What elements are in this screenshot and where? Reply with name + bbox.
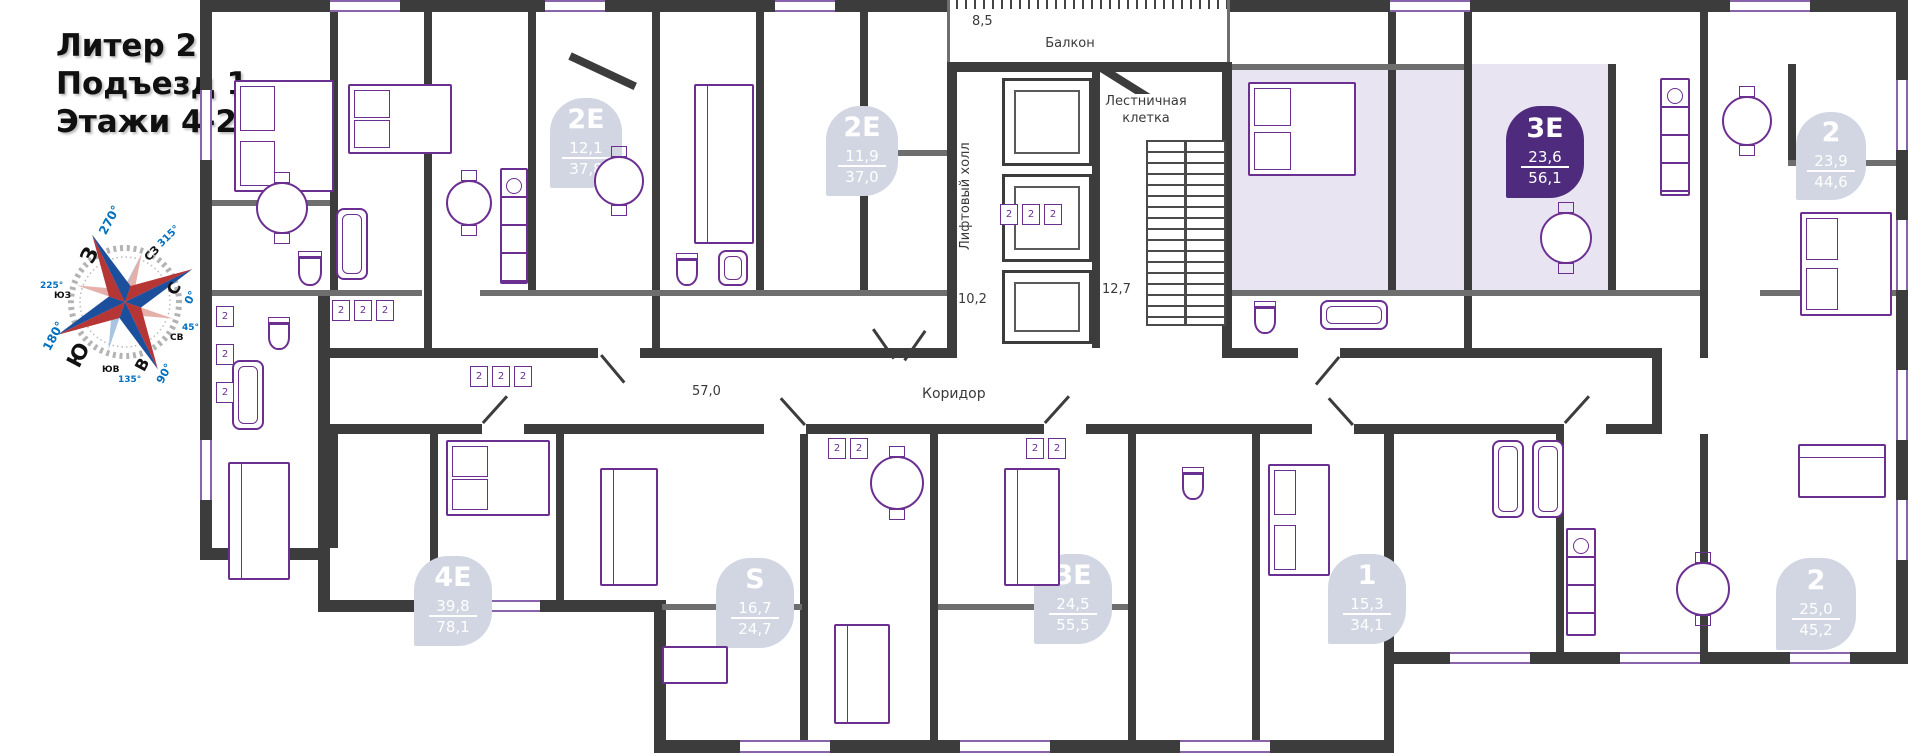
apartment-total-area: 44,6 bbox=[1814, 172, 1847, 192]
apartment-type: 2Е bbox=[843, 114, 880, 142]
window bbox=[1896, 220, 1908, 290]
wall bbox=[212, 290, 422, 296]
furniture-sofa bbox=[1798, 444, 1886, 498]
wall bbox=[800, 434, 808, 740]
window bbox=[1896, 500, 1908, 560]
furniture-sofa bbox=[834, 624, 890, 724]
window-mark: 2 bbox=[1000, 204, 1018, 225]
apartment-badge-2e-2[interactable]: 2Е 11,9 37,0 bbox=[826, 106, 898, 196]
wall bbox=[1252, 434, 1260, 740]
window bbox=[775, 0, 835, 12]
furniture-sofa bbox=[228, 462, 290, 580]
window-mark: 2 bbox=[1026, 438, 1044, 459]
plan-title-floors: Этажи 4-24 bbox=[56, 104, 259, 140]
wall bbox=[556, 434, 564, 600]
floor-plan: Литер 2 Подъезд 1 Этажи 4-24 270° З 315°… bbox=[0, 0, 1920, 753]
door-swing bbox=[1564, 395, 1590, 424]
window-mark: 2 bbox=[1048, 438, 1066, 459]
wall bbox=[330, 434, 338, 548]
wall bbox=[1388, 12, 1396, 290]
furniture-desk bbox=[662, 646, 728, 684]
compass-deg-45: 45° bbox=[182, 323, 199, 333]
window bbox=[1180, 740, 1270, 753]
apartment-living-area: 25,0 bbox=[1792, 600, 1839, 621]
furniture-bathtub bbox=[1532, 440, 1564, 518]
wall bbox=[1608, 64, 1616, 290]
wall bbox=[930, 434, 938, 740]
compass-southwest: ЮЗ bbox=[54, 291, 71, 301]
window-mark: 2 bbox=[1044, 204, 1062, 225]
window bbox=[545, 0, 605, 12]
window bbox=[1450, 652, 1530, 664]
apartment-living-area: 15,3 bbox=[1343, 595, 1390, 616]
furniture-bathtub bbox=[1492, 440, 1524, 518]
furniture-bathtub bbox=[718, 250, 748, 286]
furniture-dining-table bbox=[1540, 212, 1592, 264]
window bbox=[200, 90, 212, 160]
door-opening bbox=[1062, 348, 1118, 358]
compass-northeast: СВ bbox=[170, 333, 183, 343]
wall bbox=[1464, 12, 1472, 358]
compass-southeast: ЮВ bbox=[102, 365, 119, 375]
apartment-badge-4e[interactable]: 4Е 39,8 78,1 bbox=[414, 556, 492, 646]
wall bbox=[947, 0, 950, 62]
window bbox=[330, 0, 400, 12]
furniture-sofa bbox=[694, 84, 754, 244]
wall bbox=[947, 62, 957, 358]
window-mark: 2 bbox=[216, 306, 234, 327]
furniture-dining-table bbox=[870, 456, 924, 510]
window-mark: 2 bbox=[1022, 204, 1040, 225]
apartment-badge-3e-selected[interactable]: 3Е 23,6 56,1 bbox=[1506, 106, 1584, 198]
wall bbox=[1232, 290, 1700, 296]
furniture-bathtub bbox=[232, 360, 264, 430]
apartment-badge-2-top[interactable]: 2 23,9 44,6 bbox=[1796, 112, 1866, 200]
window bbox=[740, 740, 830, 753]
door-opening bbox=[482, 424, 524, 434]
apartment-badge-s[interactable]: S 16,7 24,7 bbox=[716, 558, 794, 648]
wall bbox=[480, 290, 947, 296]
door-swing bbox=[482, 395, 508, 424]
window bbox=[200, 440, 212, 500]
elevator-shaft bbox=[1002, 270, 1092, 344]
furniture-dining-table bbox=[1676, 562, 1730, 616]
window bbox=[1896, 80, 1908, 150]
window bbox=[1790, 652, 1850, 664]
furniture-sofa bbox=[1004, 468, 1060, 586]
window bbox=[1730, 0, 1810, 12]
stairwell-label: Лестничная клетка bbox=[1100, 94, 1192, 128]
door-opening bbox=[1298, 348, 1340, 358]
stairwell-area-label: 12,7 bbox=[1102, 282, 1131, 297]
apartment-total-area: 55,5 bbox=[1056, 615, 1089, 635]
apartment-type: 4Е bbox=[434, 564, 471, 592]
window-mark: 2 bbox=[850, 438, 868, 459]
wall bbox=[318, 290, 330, 612]
apartment-total-area: 78,1 bbox=[436, 617, 469, 637]
window bbox=[1620, 652, 1700, 664]
wall bbox=[1652, 348, 1662, 434]
window-mark: 2 bbox=[376, 300, 394, 321]
furniture-kitchen-counter bbox=[1660, 78, 1690, 196]
door-swing bbox=[1315, 356, 1340, 386]
apartment-total-area: 45,2 bbox=[1799, 620, 1832, 640]
door-swing bbox=[780, 397, 806, 426]
door-swing bbox=[1044, 395, 1070, 424]
window-mark: 2 bbox=[514, 366, 532, 387]
furniture-bed bbox=[1800, 212, 1892, 316]
door-opening bbox=[1564, 424, 1606, 434]
corridor-label: Коридор bbox=[922, 386, 986, 402]
wall bbox=[1232, 348, 1660, 358]
apartment-type: 2Е bbox=[567, 106, 604, 134]
door-swing bbox=[1328, 397, 1354, 426]
wall bbox=[528, 12, 536, 290]
compass-deg-225: 225° bbox=[40, 281, 63, 291]
plan-title-entrance: Подъезд 1 bbox=[56, 66, 248, 102]
wall bbox=[652, 12, 660, 358]
furniture-bed bbox=[446, 440, 550, 516]
door-opening bbox=[764, 424, 806, 434]
furniture-bed bbox=[1248, 82, 1356, 176]
furniture-kitchen-counter bbox=[1566, 528, 1596, 636]
apartment-type: 1 bbox=[1358, 562, 1377, 590]
compass-rose: 270° З 315° СЗ С 0° 45° СВ В 90° ЮВ 135°… bbox=[30, 195, 220, 390]
angled-wall bbox=[568, 52, 637, 90]
corridor-area-label: 57,0 bbox=[692, 384, 721, 399]
furniture-dining-table bbox=[1722, 96, 1772, 146]
wall bbox=[1092, 62, 1100, 358]
furniture-bathtub bbox=[1320, 300, 1388, 330]
plan-title-liter: Литер 2 bbox=[56, 28, 197, 64]
apartment-type: 2 bbox=[1807, 567, 1826, 595]
wall bbox=[947, 62, 1230, 72]
wall bbox=[424, 12, 432, 358]
furniture-dining-table bbox=[446, 180, 492, 226]
lift-hall-label: Лифтовый холл bbox=[958, 100, 973, 250]
window-mark: 2 bbox=[828, 438, 846, 459]
window bbox=[1390, 0, 1470, 12]
furniture-bed bbox=[348, 84, 452, 154]
window-mark: 2 bbox=[216, 382, 234, 403]
apartment-type: 2 bbox=[1822, 119, 1841, 147]
wall bbox=[1788, 64, 1796, 164]
staircase-divider bbox=[1184, 140, 1187, 326]
furniture-bathtub bbox=[336, 208, 368, 280]
furniture-toilet bbox=[1182, 472, 1204, 500]
balcony-hatch bbox=[947, 0, 1230, 9]
apartment-living-area: 24,5 bbox=[1049, 595, 1096, 616]
balcony-area-label: 8,5 bbox=[972, 14, 993, 29]
compass-deg-135: 135° bbox=[118, 375, 141, 385]
wall bbox=[1128, 434, 1136, 740]
apartment-total-area: 37,0 bbox=[845, 167, 878, 187]
door-opening bbox=[1312, 424, 1354, 434]
apartment-total-area: 24,7 bbox=[738, 619, 771, 639]
apartment-living-area: 12,1 bbox=[562, 139, 609, 160]
apartment-type: S bbox=[745, 566, 764, 594]
window-mark: 2 bbox=[332, 300, 350, 321]
door-swing bbox=[600, 354, 625, 384]
window-mark: 2 bbox=[216, 344, 234, 365]
apartment-living-area: 11,9 bbox=[838, 147, 885, 168]
wall bbox=[756, 12, 764, 290]
lift-hall-area-label: 10,2 bbox=[958, 292, 987, 307]
apartment-type: 3Е bbox=[1526, 115, 1563, 143]
apartment-badge-1[interactable]: 1 15,3 34,1 bbox=[1328, 554, 1406, 644]
apartment-living-area: 16,7 bbox=[731, 599, 778, 620]
window bbox=[1896, 370, 1908, 440]
apartment-total-area: 56,1 bbox=[1528, 168, 1561, 188]
balcony-label: Балкон bbox=[1030, 36, 1110, 53]
wall bbox=[1232, 64, 1464, 70]
furniture-toilet bbox=[676, 258, 698, 286]
wall bbox=[1700, 12, 1708, 358]
furniture-toilet bbox=[298, 256, 322, 286]
furniture-sofa bbox=[600, 468, 658, 586]
apartment-living-area: 23,9 bbox=[1807, 152, 1854, 173]
furniture-bed bbox=[1268, 464, 1330, 576]
wall bbox=[330, 424, 1660, 434]
apartment-badge-2-bottom[interactable]: 2 25,0 45,2 bbox=[1776, 558, 1856, 650]
window-mark: 2 bbox=[492, 366, 510, 387]
apartment-total-area: 34,1 bbox=[1350, 615, 1383, 635]
door-opening bbox=[1044, 424, 1086, 434]
wall bbox=[1227, 0, 1230, 62]
apartment-living-area: 39,8 bbox=[429, 597, 476, 618]
furniture-toilet bbox=[1254, 306, 1276, 334]
window-mark: 2 bbox=[354, 300, 372, 321]
apartment-living-area: 23,6 bbox=[1521, 148, 1568, 169]
furniture-dining-table bbox=[256, 182, 308, 234]
window bbox=[960, 740, 1050, 753]
furniture-toilet bbox=[268, 322, 290, 350]
furniture-kitchen-counter bbox=[500, 168, 528, 284]
elevator-shaft bbox=[1002, 78, 1092, 166]
window-mark: 2 bbox=[470, 366, 488, 387]
furniture-dining-table bbox=[594, 156, 644, 206]
